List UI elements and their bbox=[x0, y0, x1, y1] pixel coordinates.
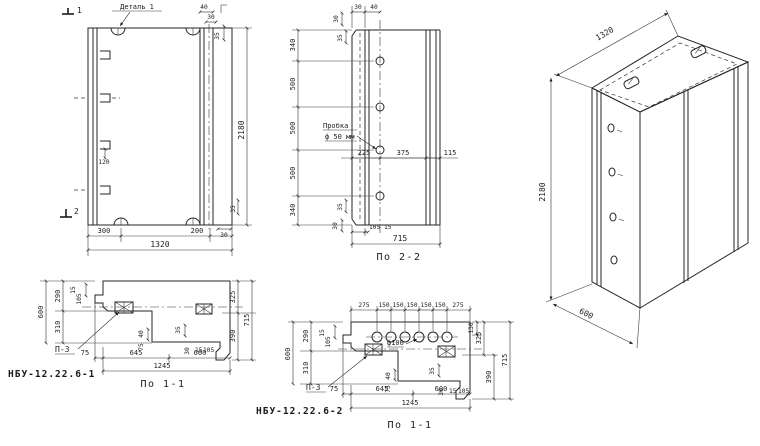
plug-holes bbox=[376, 20, 384, 233]
dim-top-b: 30 bbox=[207, 14, 215, 21]
s11b-top-chain: 275 150 150 150 150 150 275 bbox=[351, 302, 470, 331]
dim-right-a: 325 bbox=[229, 291, 237, 304]
dim-top-0: 275 bbox=[358, 302, 369, 309]
section22-bottom-left-dims: 35 30 bbox=[332, 200, 346, 231]
dim-top-c: 35 bbox=[214, 32, 221, 40]
dim-mid-0: 225 bbox=[358, 149, 371, 157]
iso-width-dim: 1320 bbox=[554, 10, 678, 88]
plug-label-line1: Пробка bbox=[323, 122, 348, 130]
s11a-left-chain: 290 310 600 15 105 bbox=[37, 281, 152, 343]
s11a-title: По 1-1 bbox=[140, 379, 185, 390]
dim-bottom-a: 75 bbox=[330, 385, 338, 393]
dim-left-a: 290 bbox=[302, 330, 310, 343]
s11a-code: НБУ-12.22.6-1 bbox=[8, 369, 95, 380]
dim-bl-a: 35 bbox=[337, 203, 344, 211]
dim-small-d: 30 bbox=[184, 347, 191, 355]
s11b-left-chain: 290 310 600 15 105 bbox=[284, 322, 398, 384]
dim-left-small-a: 15 bbox=[319, 329, 326, 337]
dim-chain-0: 340 bbox=[289, 39, 297, 52]
iso-height-dim: 2180 bbox=[538, 78, 592, 302]
s11a-embed-plates bbox=[82, 302, 243, 314]
dim-width: 1320 bbox=[594, 25, 615, 43]
iso-lifting-loops bbox=[623, 45, 707, 90]
dim-small-c: 35 bbox=[175, 326, 182, 334]
dim-top-5: 150 bbox=[434, 302, 445, 309]
section22-bottom-dims: 105 15 715 bbox=[352, 224, 440, 248]
dim-bottom-total: 1245 bbox=[154, 362, 171, 370]
embed-label: П-3 bbox=[306, 383, 321, 392]
section-marker-1: 1 bbox=[62, 6, 82, 15]
dim-chain-3: 500 bbox=[289, 167, 297, 180]
dim-mid-1: 375 bbox=[397, 149, 410, 157]
dim-top-a: 40 bbox=[200, 4, 208, 11]
embed-label: П-3 bbox=[55, 345, 70, 354]
front-bottom-dims: 300 200 1320 bbox=[88, 225, 232, 256]
dim-side-b: 30 bbox=[220, 232, 228, 239]
s11a-right-chain: 325 390 715 bbox=[222, 281, 256, 360]
hole-label: ф100 bbox=[387, 339, 404, 347]
dim-bottom-a: 75 bbox=[81, 349, 89, 357]
section22-title: По 2-2 bbox=[376, 252, 421, 263]
view-front-elevation: 120 1 2 Деталь 1 40 30 35 2180 35 30 bbox=[60, 3, 252, 256]
dim-width: 715 bbox=[393, 234, 408, 243]
dim-top-2: 150 bbox=[392, 302, 403, 309]
dim-bottom-b: 645 bbox=[130, 349, 143, 357]
dim-top-6: 275 bbox=[452, 302, 463, 309]
plug-callout: Пробка ф 50 мм bbox=[323, 122, 376, 149]
dim-height: 2180 bbox=[538, 182, 547, 201]
dim-width: 1320 bbox=[150, 240, 169, 249]
hook-dim-120: 120 bbox=[98, 149, 109, 166]
dim-chain-2: 500 bbox=[289, 122, 297, 135]
dim-left-small-a: 15 bbox=[70, 286, 77, 294]
dim-top-b: 40 bbox=[370, 4, 378, 11]
dim-bottom-c: 600 bbox=[435, 385, 448, 393]
dim-left-total: 600 bbox=[284, 348, 292, 361]
dim-top-4: 150 bbox=[420, 302, 431, 309]
blueprint-canvas: 120 1 2 Деталь 1 40 30 35 2180 35 30 bbox=[0, 0, 760, 446]
dim-depth: 600 bbox=[578, 306, 595, 321]
section-marker-1-label: 1 bbox=[77, 6, 82, 15]
dim-left-a: 290 bbox=[54, 290, 62, 303]
s11b-hole-callout: ф100 bbox=[387, 339, 417, 347]
dim-bottom-left: 300 bbox=[98, 227, 111, 235]
lifting-loop-recesses bbox=[111, 28, 200, 225]
dim-right-c: 390 bbox=[485, 371, 493, 384]
s11b-title: По 1-1 bbox=[387, 420, 432, 431]
drawing-svg: 120 1 2 Деталь 1 40 30 35 2180 35 30 bbox=[0, 0, 760, 446]
dim-bottom-b: 15 bbox=[384, 224, 392, 231]
plug-label-line2: ф 50 мм bbox=[325, 133, 355, 141]
section-marker-2-label: 2 bbox=[74, 207, 79, 216]
dim-chain-1: 500 bbox=[289, 78, 297, 91]
view-isometric: 1320 2180 600 bbox=[538, 10, 748, 348]
detail-callout: Деталь 1 bbox=[112, 3, 162, 26]
dim-right-b: 390 bbox=[229, 330, 237, 343]
dim-left-b: 310 bbox=[302, 362, 310, 375]
s11a-embed-callout: П-3 bbox=[55, 312, 119, 354]
dim-top-3: 150 bbox=[406, 302, 417, 309]
dim-small-a: 40 bbox=[138, 330, 145, 338]
iso-depth-dim: 600 bbox=[553, 304, 640, 348]
dim-small-c: 35 bbox=[429, 367, 436, 375]
dim-height: 2180 bbox=[237, 120, 246, 139]
dim-bl-b: 30 bbox=[332, 222, 339, 230]
dim-right-b: 325 bbox=[475, 332, 483, 345]
dim-mid-2: 115 bbox=[444, 149, 457, 157]
dim-left-total: 600 bbox=[37, 306, 45, 319]
dim-top-1: 150 bbox=[378, 302, 389, 309]
section-marker-2: 2 bbox=[60, 207, 79, 217]
dim-bottom-total: 1245 bbox=[402, 399, 419, 407]
view-section-1-1-type2: 275 150 150 150 150 150 275 ф100 П-3 290… bbox=[256, 302, 514, 431]
view-section-2-2: 340 500 500 500 340 30 40 30 35 Пробка ф… bbox=[289, 4, 458, 263]
dim-tl-b: 35 bbox=[337, 34, 344, 42]
iso-holes bbox=[608, 124, 624, 264]
dim-tl-a: 30 bbox=[333, 15, 340, 23]
dim-bottom-a: 105 bbox=[369, 224, 380, 231]
dim-chain-4: 340 bbox=[289, 204, 297, 217]
front-height-dim: 2180 bbox=[232, 28, 252, 225]
dim-left-b: 310 bbox=[54, 321, 62, 334]
dim-hook: 120 bbox=[98, 159, 109, 166]
detail-label: Деталь 1 bbox=[120, 3, 154, 11]
s11b-code: НБУ-12.22.6-2 bbox=[256, 406, 343, 417]
dim-left-small-b: 105 bbox=[325, 336, 332, 347]
dim-bottom-b: 645 bbox=[376, 385, 389, 393]
front-bottom-right-dims: 35 30 bbox=[218, 200, 238, 239]
dim-side-a: 35 bbox=[230, 205, 237, 213]
dim-right-total: 715 bbox=[243, 314, 251, 327]
section22-top-dims: 30 40 30 35 bbox=[333, 4, 380, 43]
dim-bottom-c: 600 bbox=[194, 349, 207, 357]
s11b-holes bbox=[366, 332, 458, 342]
dim-small-a: 40 bbox=[385, 372, 392, 380]
dim-right-total: 715 bbox=[501, 354, 509, 367]
dim-top-a: 30 bbox=[354, 4, 362, 11]
dim-right-a: 130 bbox=[468, 322, 475, 333]
view-section-1-1-type1: П-3 290 310 600 15 105 325 390 715 40 75… bbox=[8, 281, 256, 390]
dim-bottom-right: 200 bbox=[191, 227, 204, 235]
dim-left-small-b: 105 bbox=[76, 293, 83, 304]
